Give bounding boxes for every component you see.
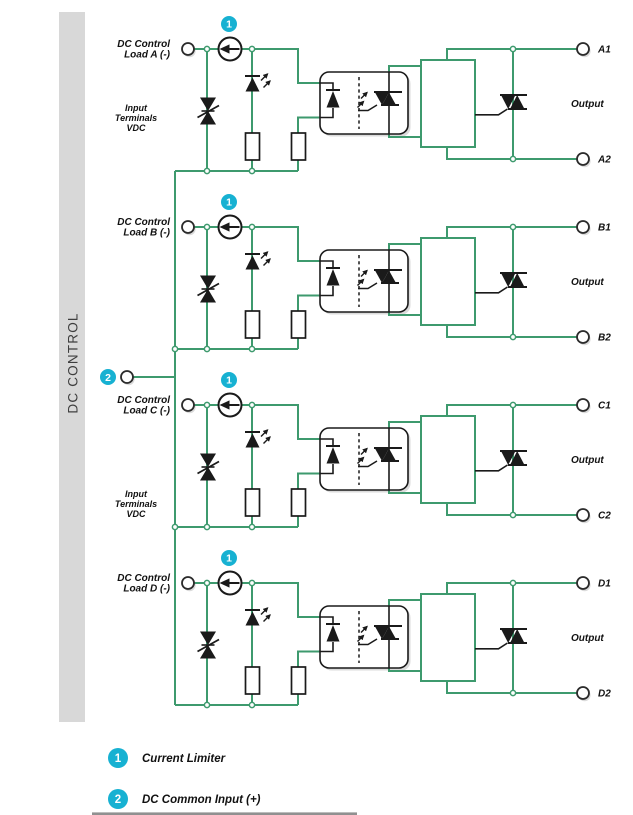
load-label-line2: Load A (-) xyxy=(124,50,171,61)
input-terminals-label-2: Input Terminals VDC xyxy=(115,489,157,519)
output-label: Output xyxy=(571,455,604,466)
output1-label: D1 xyxy=(598,579,611,590)
output2-label: A2 xyxy=(597,155,611,166)
load-label-line1: DC Control xyxy=(117,217,170,228)
legend-badge-1-number: 1 xyxy=(115,753,122,765)
output2-label: B2 xyxy=(598,333,611,344)
channel-a-circuit xyxy=(175,16,591,174)
output2-label: C2 xyxy=(598,511,611,522)
output1-label: B1 xyxy=(598,223,611,234)
legend: 1 Current Limiter 2 DC Common Input (+) xyxy=(108,748,261,809)
common-input-terminal xyxy=(121,371,133,383)
load-label-line1: DC Control xyxy=(117,39,170,50)
channel-c-circuit xyxy=(175,372,591,530)
legend-badge-2-number: 2 xyxy=(115,794,121,806)
badge-number: 1 xyxy=(226,375,232,387)
load-label-line2: Load B (-) xyxy=(123,228,170,239)
junction-node xyxy=(172,524,177,529)
channel-d: DC Control Load D (-) 1 D1 D2 Output xyxy=(117,550,611,708)
common-input-badge-number: 2 xyxy=(105,372,111,384)
badge-number: 1 xyxy=(226,19,232,31)
channel-a: DC Control Load A (-) 1 A1 A2 Output xyxy=(117,16,611,174)
output1-label: A1 xyxy=(597,45,611,56)
input-terminals-line2: Terminals xyxy=(115,499,157,509)
channel-b: DC Control Load B (-) 1 B1 B2 Output xyxy=(117,194,611,352)
load-label-line2: Load C (-) xyxy=(123,406,170,417)
output-label: Output xyxy=(571,99,604,110)
badge-number: 1 xyxy=(226,197,232,209)
sidebar-label: DC CONTROL xyxy=(66,312,81,413)
junction-node xyxy=(172,346,177,351)
input-terminals-line3: VDC xyxy=(126,123,146,133)
circuit-diagram: DC CONTROL 2 DC Control Load A (-) 1 A1 … xyxy=(0,0,633,815)
channel-b-circuit xyxy=(175,194,591,352)
output-label: Output xyxy=(571,633,604,644)
channel-d-circuit xyxy=(175,550,591,708)
load-label-line1: DC Control xyxy=(117,395,170,406)
output-label: Output xyxy=(571,277,604,288)
output1-label: C1 xyxy=(598,401,611,412)
channel-c: DC Control Load C (-) 1 C1 C2 Output xyxy=(117,372,611,530)
load-label-line1: DC Control xyxy=(117,573,170,584)
load-label-line2: Load D (-) xyxy=(123,584,170,595)
badge-number: 1 xyxy=(226,553,232,565)
input-terminals-label-1: Input Terminals VDC xyxy=(115,103,157,133)
output2-label: D2 xyxy=(598,689,611,700)
input-terminals-line1: Input xyxy=(125,103,148,113)
legend-label-1: Current Limiter xyxy=(142,753,226,765)
input-terminals-line2: Terminals xyxy=(115,113,157,123)
input-terminals-line1: Input xyxy=(125,489,148,499)
input-terminals-line3: VDC xyxy=(126,509,146,519)
legend-label-2: DC Common Input (+) xyxy=(142,794,261,806)
